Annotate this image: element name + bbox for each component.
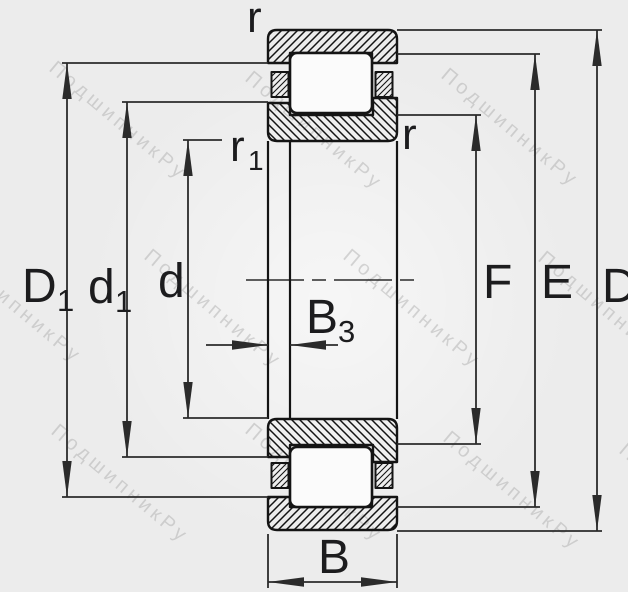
- arrowhead: [361, 577, 397, 586]
- drawing-canvas: ПодшипникРу ПодшипникРу ПодшипникРу Подш…: [0, 0, 628, 592]
- cage-pocket-bottom-right: [376, 463, 393, 488]
- cage-pocket-bottom-left: [272, 463, 289, 488]
- label-E: E: [541, 256, 573, 309]
- watermark-text: ПодшипникРу: [439, 427, 586, 555]
- bearing-drawing: ПодшипникРу ПодшипникРу ПодшипникРу Подш…: [0, 0, 628, 592]
- roller-top: [290, 53, 372, 113]
- label-d: d: [158, 255, 185, 308]
- cage-pocket-top-right: [376, 72, 393, 97]
- arrowhead: [471, 408, 480, 444]
- arrowhead: [183, 382, 192, 418]
- watermark-text: ПодшипникРу: [615, 439, 628, 567]
- label-D: D: [602, 260, 628, 313]
- label-r1-sub: 1: [248, 145, 264, 176]
- bearing-bottom-section: [268, 419, 397, 530]
- label-d1: d: [88, 261, 115, 314]
- label-d1-sub: 1: [115, 284, 132, 319]
- label-r-outer: r: [247, 0, 262, 42]
- label-F: F: [483, 256, 512, 309]
- watermark-text: ПодшипникРу: [437, 64, 584, 192]
- arrowhead: [592, 495, 601, 531]
- label-B3: B: [306, 291, 338, 344]
- label-B3-sub: 3: [338, 314, 355, 349]
- watermark-text: ПодшипникРу: [339, 245, 486, 373]
- arrowhead: [592, 30, 601, 66]
- label-B: B: [318, 531, 350, 584]
- label-r-inner: r: [402, 110, 417, 159]
- cage-pocket-top-left: [272, 72, 289, 97]
- arrowhead: [183, 140, 192, 176]
- arrowhead: [471, 115, 480, 151]
- label-D1: D: [22, 260, 57, 313]
- label-r1: r: [230, 122, 245, 171]
- bearing-top-section: [268, 30, 397, 141]
- arrowhead: [268, 577, 304, 586]
- roller-bottom: [290, 447, 372, 507]
- label-D1-sub: 1: [57, 283, 74, 318]
- watermark-text: ПодшипникРу: [47, 420, 194, 548]
- arrowhead: [530, 54, 539, 90]
- arrowhead: [62, 461, 71, 497]
- arrowhead: [122, 421, 131, 457]
